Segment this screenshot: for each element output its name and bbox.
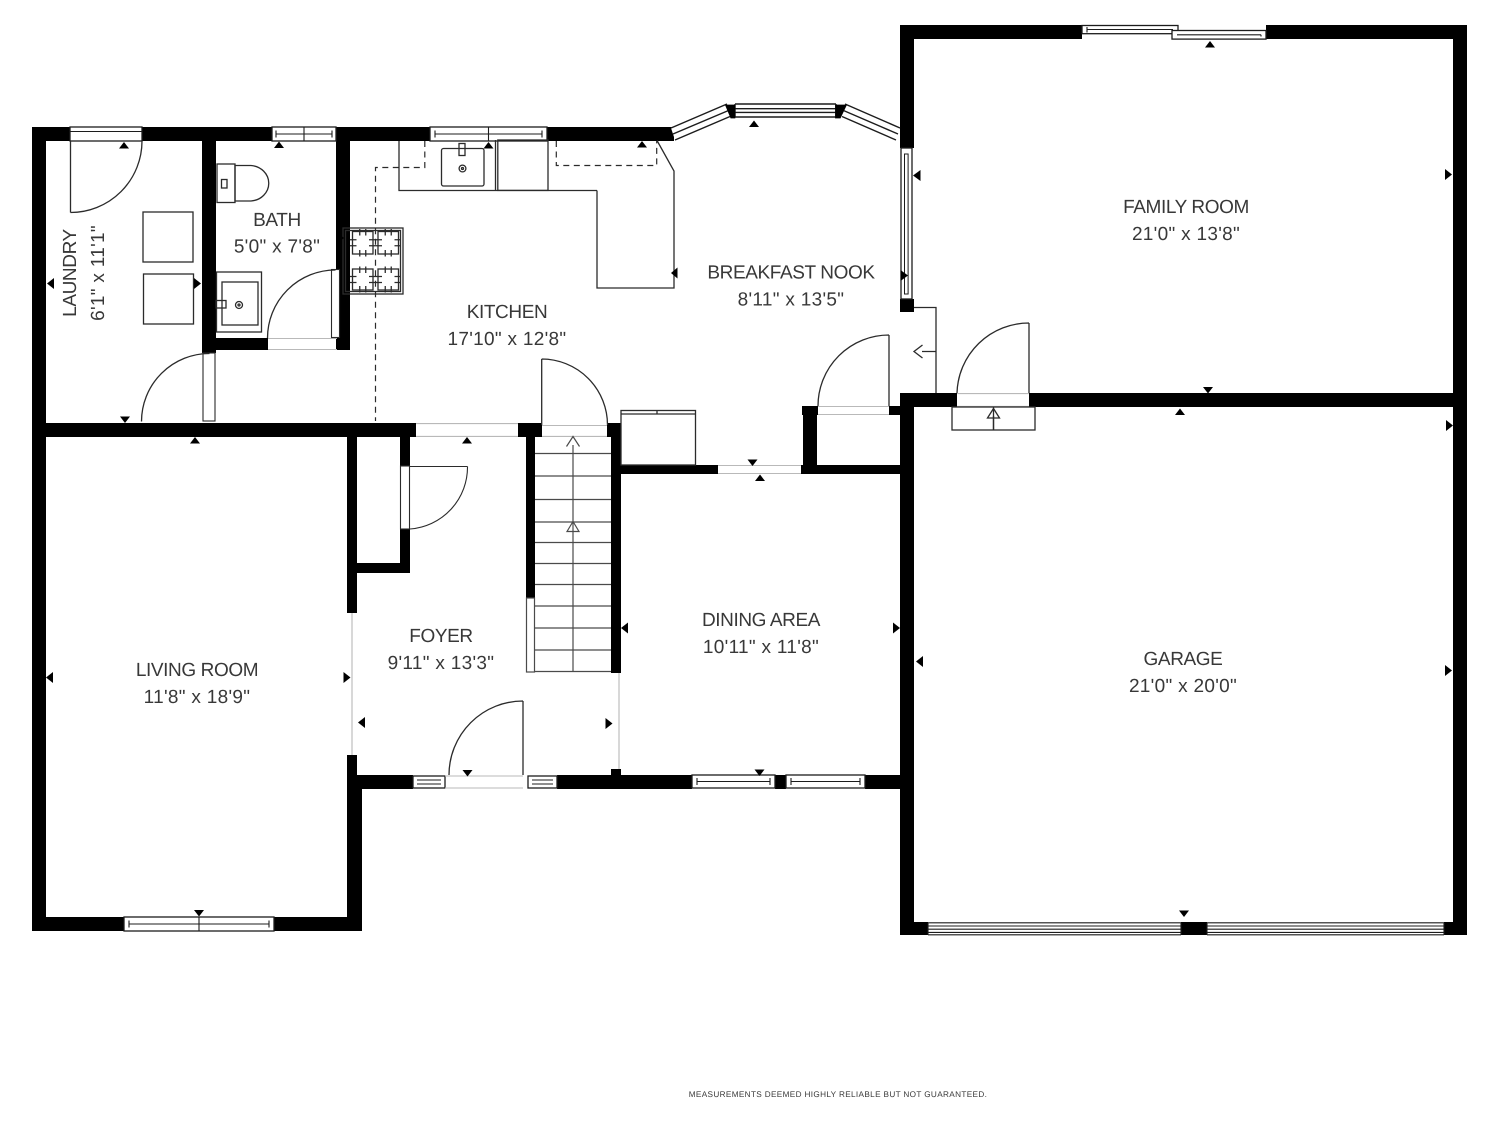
svg-text:FOYER: FOYER <box>409 626 472 647</box>
svg-text:GARAGE: GARAGE <box>1144 649 1223 670</box>
svg-text:MEASUREMENTS DEEMED HIGHLY REL: MEASUREMENTS DEEMED HIGHLY RELIABLE BUT … <box>689 1090 987 1099</box>
svg-text:6'1" x 11'1": 6'1" x 11'1" <box>88 225 109 321</box>
svg-text:17'10" x 12'8": 17'10" x 12'8" <box>448 329 567 350</box>
svg-text:21'0" x 13'8": 21'0" x 13'8" <box>1132 224 1240 245</box>
svg-text:LIVING ROOM: LIVING ROOM <box>136 660 258 681</box>
svg-text:BATH: BATH <box>253 210 301 231</box>
svg-text:10'11" x 11'8": 10'11" x 11'8" <box>703 637 819 658</box>
svg-text:8'11" x 13'5": 8'11" x 13'5" <box>738 290 845 311</box>
svg-text:LAUNDRY: LAUNDRY <box>60 228 81 316</box>
svg-text:9'11" x 13'3": 9'11" x 13'3" <box>388 653 495 674</box>
svg-text:DINING AREA: DINING AREA <box>702 610 821 631</box>
svg-text:5'0" x 7'8": 5'0" x 7'8" <box>234 237 320 258</box>
svg-text:KITCHEN: KITCHEN <box>467 302 548 323</box>
svg-text:FAMILY ROOM: FAMILY ROOM <box>1123 197 1249 218</box>
svg-text:11'8" x 18'9": 11'8" x 18'9" <box>144 687 251 708</box>
svg-text:BREAKFAST NOOK: BREAKFAST NOOK <box>707 263 875 284</box>
svg-text:21'0" x 20'0": 21'0" x 20'0" <box>1129 676 1237 697</box>
